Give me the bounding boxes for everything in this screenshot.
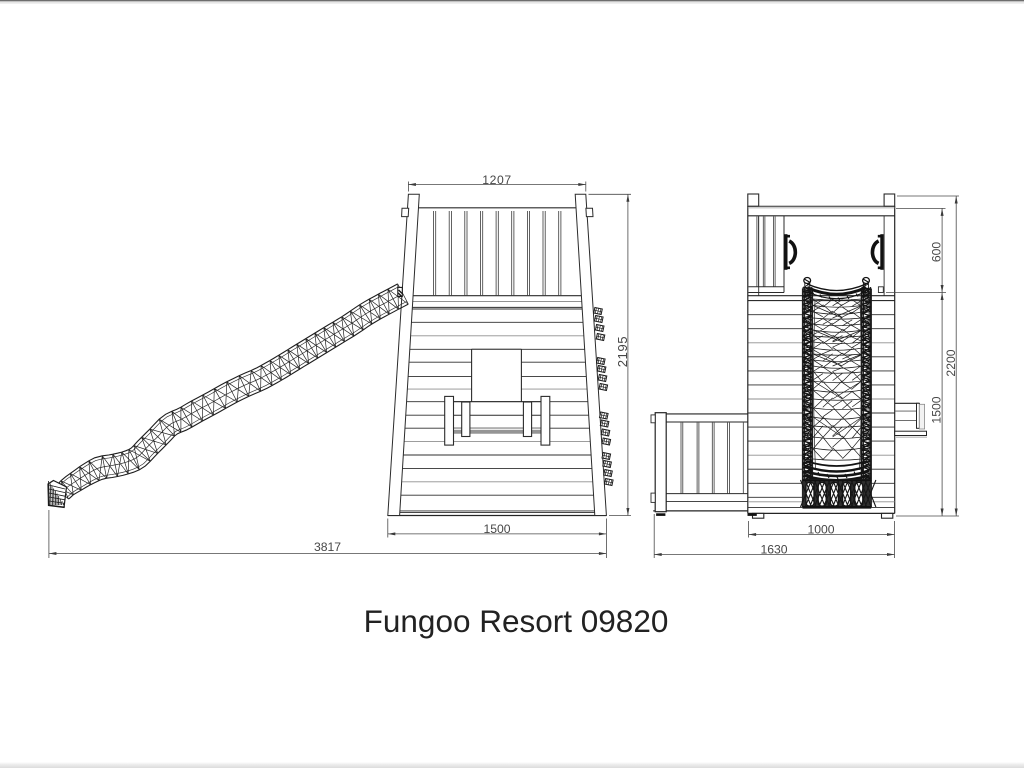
svg-text:1000: 1000: [807, 523, 834, 537]
svg-text:1500: 1500: [930, 396, 944, 423]
svg-text:1207: 1207: [482, 173, 512, 187]
svg-text:3817: 3817: [314, 540, 341, 554]
svg-text:1630: 1630: [760, 542, 787, 556]
svg-text:2200: 2200: [944, 349, 958, 376]
svg-text:1500: 1500: [483, 522, 510, 536]
svg-text:2195: 2195: [615, 336, 630, 367]
svg-text:600: 600: [930, 242, 944, 263]
svg-text:Fungoo Resort 09820: Fungoo Resort 09820: [364, 603, 669, 639]
